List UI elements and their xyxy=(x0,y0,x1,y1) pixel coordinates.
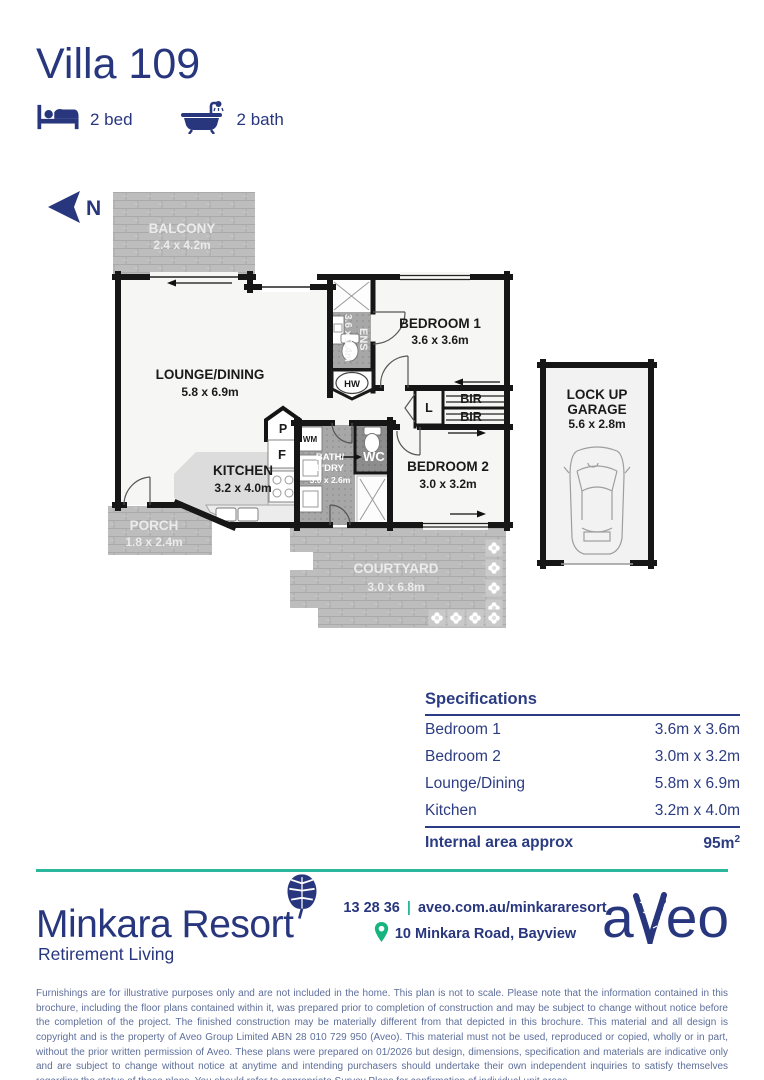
wm-label: WM xyxy=(303,435,318,444)
resort-tagline: Retirement Living xyxy=(38,944,174,965)
table-row: Bedroom 1 3.6m x 3.6m xyxy=(425,716,740,743)
bed-icon xyxy=(36,103,80,136)
north-arrow: N xyxy=(48,191,101,223)
footer-divider xyxy=(36,869,728,872)
aveo-logo-eo: eo xyxy=(666,890,729,947)
spec-value: 3.6m x 3.6m xyxy=(655,721,740,739)
garage-label-2: GARAGE xyxy=(567,402,626,417)
spec-value: 5.8m x 6.9m xyxy=(655,775,740,793)
bath-icon xyxy=(181,100,227,139)
kitchen-label: KITCHEN xyxy=(213,463,273,478)
bedroom1-label: BEDROOM 1 xyxy=(399,316,481,331)
bir2-label: BIR xyxy=(460,410,482,424)
location-pin-icon xyxy=(374,921,389,947)
bedroom1-dims: 3.6 x 3.6m xyxy=(411,333,468,347)
linen-label: L xyxy=(425,401,433,415)
resort-name: Minkara Resort xyxy=(36,903,293,947)
ens-dims: 3.6 x 1.4m xyxy=(342,314,353,362)
floorplan: N xyxy=(0,180,764,650)
spec-label: Lounge/Dining xyxy=(425,775,525,793)
kitchen-dims: 3.2 x 4.0m xyxy=(214,481,271,495)
lounge-label: LOUNGE/DINING xyxy=(156,367,265,382)
sink xyxy=(238,508,258,521)
table-row: Lounge/Dining 5.8m x 6.9m xyxy=(425,770,740,797)
porch-dims: 1.8 x 2.4m xyxy=(125,535,182,549)
balcony-label: BALCONY xyxy=(149,221,216,236)
table-row: Kitchen 3.2m x 4.0m xyxy=(425,797,740,824)
fridge-label: F xyxy=(278,447,286,462)
phone-website-line: 13 28 36 | aveo.com.au/minkararesort xyxy=(310,900,640,916)
internal-area-row: Internal area approx 95m2 xyxy=(425,826,740,853)
stove xyxy=(269,471,296,502)
pantry-label: P xyxy=(279,422,287,436)
street-address: 10 Minkara Road, Bayview xyxy=(395,926,576,942)
courtyard-dims: 3.0 x 6.8m xyxy=(367,580,424,594)
spec-label: Bedroom 2 xyxy=(425,748,501,766)
phone-number: 13 28 36 xyxy=(343,900,399,916)
spec-value: 3.2m x 4.0m xyxy=(655,802,740,820)
table-row: Bedroom 2 3.0m x 3.2m xyxy=(425,743,740,770)
internal-area-value: 95m2 xyxy=(703,834,740,853)
spec-label: Kitchen xyxy=(425,802,477,820)
brochure-page: Villa 109 2 bed 2 bath xyxy=(0,0,764,1080)
bir1-label: BIR xyxy=(460,392,482,406)
porch-label: PORCH xyxy=(130,518,179,533)
internal-area-label: Internal area approx xyxy=(425,834,573,853)
bed-count-label: 2 bed xyxy=(90,110,133,130)
garage-label-1: LOCK UP xyxy=(567,387,628,402)
page-title: Villa 109 xyxy=(36,40,200,89)
hw-label: HW xyxy=(344,379,360,390)
north-label: N xyxy=(86,197,101,220)
ens-label: ENS xyxy=(357,328,369,351)
spec-value: 3.0m x 3.2m xyxy=(655,748,740,766)
spec-label: Bedroom 1 xyxy=(425,721,501,739)
address-line: 10 Minkara Road, Bayview xyxy=(310,921,640,947)
aveo-leaf-v-icon xyxy=(633,892,667,954)
wc-label: WC xyxy=(363,449,385,464)
pipe-separator: | xyxy=(404,900,414,916)
laundry-tub xyxy=(299,486,322,512)
aveo-logo-a: a xyxy=(602,890,634,947)
website-url: aveo.com.au/minkararesort xyxy=(418,900,607,916)
disclaimer-text: Furnishings are for illustrative purpose… xyxy=(36,987,728,1080)
specifications-table: Specifications Bedroom 1 3.6m x 3.6m Bed… xyxy=(425,690,740,853)
aveo-logo: a eo xyxy=(602,890,729,954)
lounge-dims: 5.8 x 6.9m xyxy=(181,385,238,399)
bedroom2-label: BEDROOM 2 xyxy=(407,459,489,474)
bath-label-2: L'DRY xyxy=(316,463,344,474)
garage-dims: 5.6 x 2.8m xyxy=(568,417,625,431)
specs-title: Specifications xyxy=(425,690,740,716)
contact-block: 13 28 36 | aveo.com.au/minkararesort 10 … xyxy=(310,900,640,947)
balcony-dims: 2.4 x 4.2m xyxy=(153,238,210,252)
bath-dims: 3.0 x 2.6m xyxy=(310,475,351,485)
bath-label-1: BATH/ xyxy=(316,452,345,463)
bed-bath-row: 2 bed 2 bath xyxy=(36,100,284,139)
bath-count-label: 2 bath xyxy=(237,110,284,130)
bedroom2-dims: 3.0 x 3.2m xyxy=(419,477,476,491)
courtyard-label: COURTYARD xyxy=(353,561,438,576)
